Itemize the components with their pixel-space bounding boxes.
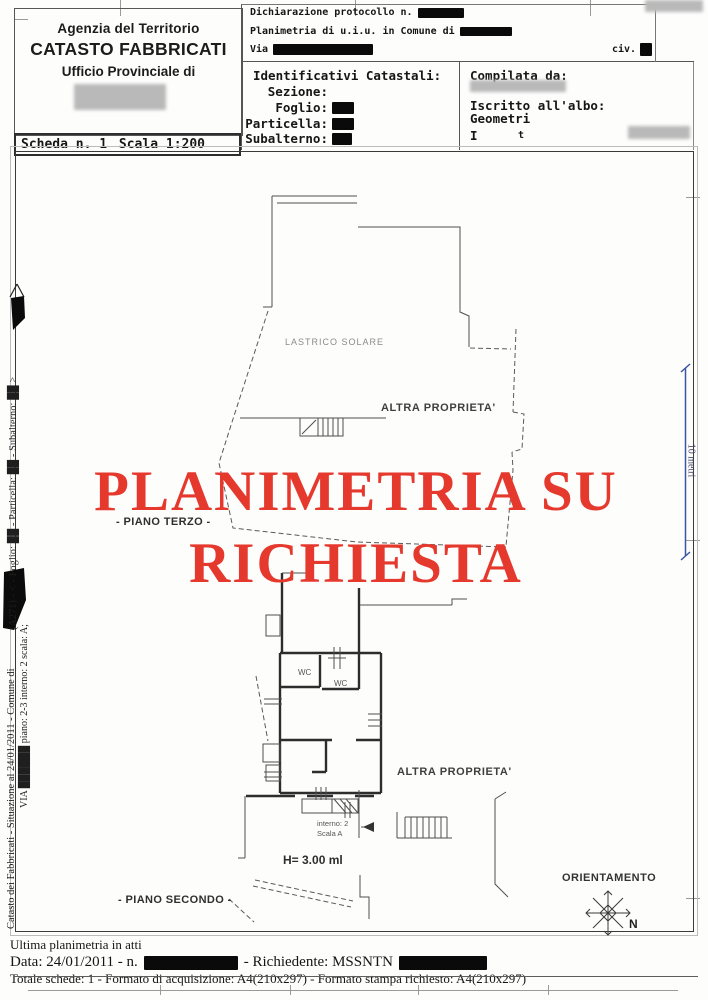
compilata-name-redaction-blur (470, 80, 566, 92)
sezione-label: Sezione: (244, 84, 328, 99)
foglio-row: Foglio: (244, 100, 354, 115)
subalterno-row: Subalterno: (244, 131, 352, 146)
footer-number-redaction (144, 956, 238, 970)
label-piano-secondo: - PIANO SECONDO - (118, 894, 232, 906)
particella-label: Particella: (244, 116, 328, 131)
label-orientamento: ORIENTAMENTO (562, 872, 656, 884)
subalterno-label: Subalterno: (244, 131, 328, 146)
via-redaction (273, 44, 373, 55)
comune-label: Planimetria di u.i.u. in Comune di (250, 26, 455, 37)
protocol-line-1: Dichiarazione protocollo n. (250, 7, 464, 18)
label-altezza: H= 3.00 ml (283, 853, 343, 867)
protocol-label: Dichiarazione protocollo n. (250, 7, 413, 18)
identificativi-box: Identificativi Catastali: Sezione: Fogli… (241, 62, 460, 150)
sezione-row: Sezione: (244, 84, 328, 99)
protocol-line-2: Planimetria di u.i.u. in Comune di (250, 26, 512, 37)
label-nord: N (629, 917, 638, 931)
label-altra-proprieta-top: ALTRA PROPRIETA' (381, 402, 496, 414)
header-divider-right (655, 4, 656, 62)
vertical-text-upper: (A271) - < - Foglio: ██ - Particella: ██… (8, 285, 19, 630)
label-scala-interna: Scala A (317, 829, 348, 839)
vertical-text-lower-2: VIA ██████ piano: 2-3 interno: 2 scala: … (19, 608, 30, 808)
protocol-number-redaction (418, 8, 464, 18)
footer-richiedente-redaction (399, 956, 487, 970)
footer-totale-schede: Totale schede: 1 - Formato di acquisizio… (10, 971, 526, 987)
vertical-text-lower-1: Catasto dei Fabbricati - Situazione al 2… (6, 617, 17, 929)
footer-frame-line (14, 976, 698, 977)
label-interno-scala: interno: 2 Scala A (317, 819, 348, 839)
stamp-planimetria-su: PLANIMETRIA SU (76, 459, 636, 524)
civ-label: civ. (612, 44, 636, 55)
label-wc-1: WC (298, 668, 311, 677)
subalterno-redaction (332, 133, 352, 145)
fold-tick-bottom-4 (548, 985, 549, 995)
compilata-fragment-2: t (518, 130, 524, 141)
compilata-number-redaction-blur (628, 126, 690, 139)
civ-redaction (640, 43, 652, 56)
footer-ultima-planimetria: Ultima planimetria in atti (10, 937, 142, 953)
stamp-richiesta: RICHIESTA (76, 531, 636, 596)
header-office-box: Agenzia del Territorio CATASTO FABBRICAT… (14, 8, 243, 136)
registry-name: CATASTO FABBRICATI (15, 39, 242, 60)
footer-data-label: Data: 24/01/2011 - n. (10, 954, 138, 971)
office-name-redaction-blur (74, 84, 166, 110)
cadastral-document-page: Agenzia del Territorio CATASTO FABBRICAT… (0, 0, 708, 1000)
protocol-box: Dichiarazione protocollo n. Planimetria … (241, 4, 694, 62)
footer-data-richiedente: Data: 24/01/2011 - n. - Richiedente: MSS… (10, 954, 487, 971)
agency-name: Agenzia del Territorio (15, 21, 242, 36)
foglio-redaction (332, 102, 354, 114)
label-interno: interno: 2 (317, 819, 348, 829)
protocol-line-3: Via civ. (250, 44, 687, 55)
via-label: Via (250, 44, 268, 55)
office-line: Ufficio Provinciale di (15, 64, 242, 79)
identificativi-title: Identificativi Catastali: (253, 68, 441, 83)
label-lastrico-solare: LASTRICO SOLARE (285, 337, 384, 347)
compilata-fragment-1: I (470, 128, 478, 143)
footer-richiedente-label: - Richiedente: MSSNTN (244, 954, 393, 971)
particella-row: Particella: (244, 116, 354, 131)
foglio-label: Foglio: (244, 100, 328, 115)
watermark-redaction-blur (645, 0, 703, 12)
label-altra-proprieta-bottom: ALTRA PROPRIETA' (397, 766, 512, 778)
comune-redaction (460, 27, 512, 36)
bottom-fold-line (28, 990, 678, 991)
label-wc-2: WC (334, 679, 347, 688)
scale-bar-label: 10 metri (686, 433, 697, 489)
albo-line-2: Geometri (470, 111, 530, 126)
particella-redaction (332, 118, 354, 130)
